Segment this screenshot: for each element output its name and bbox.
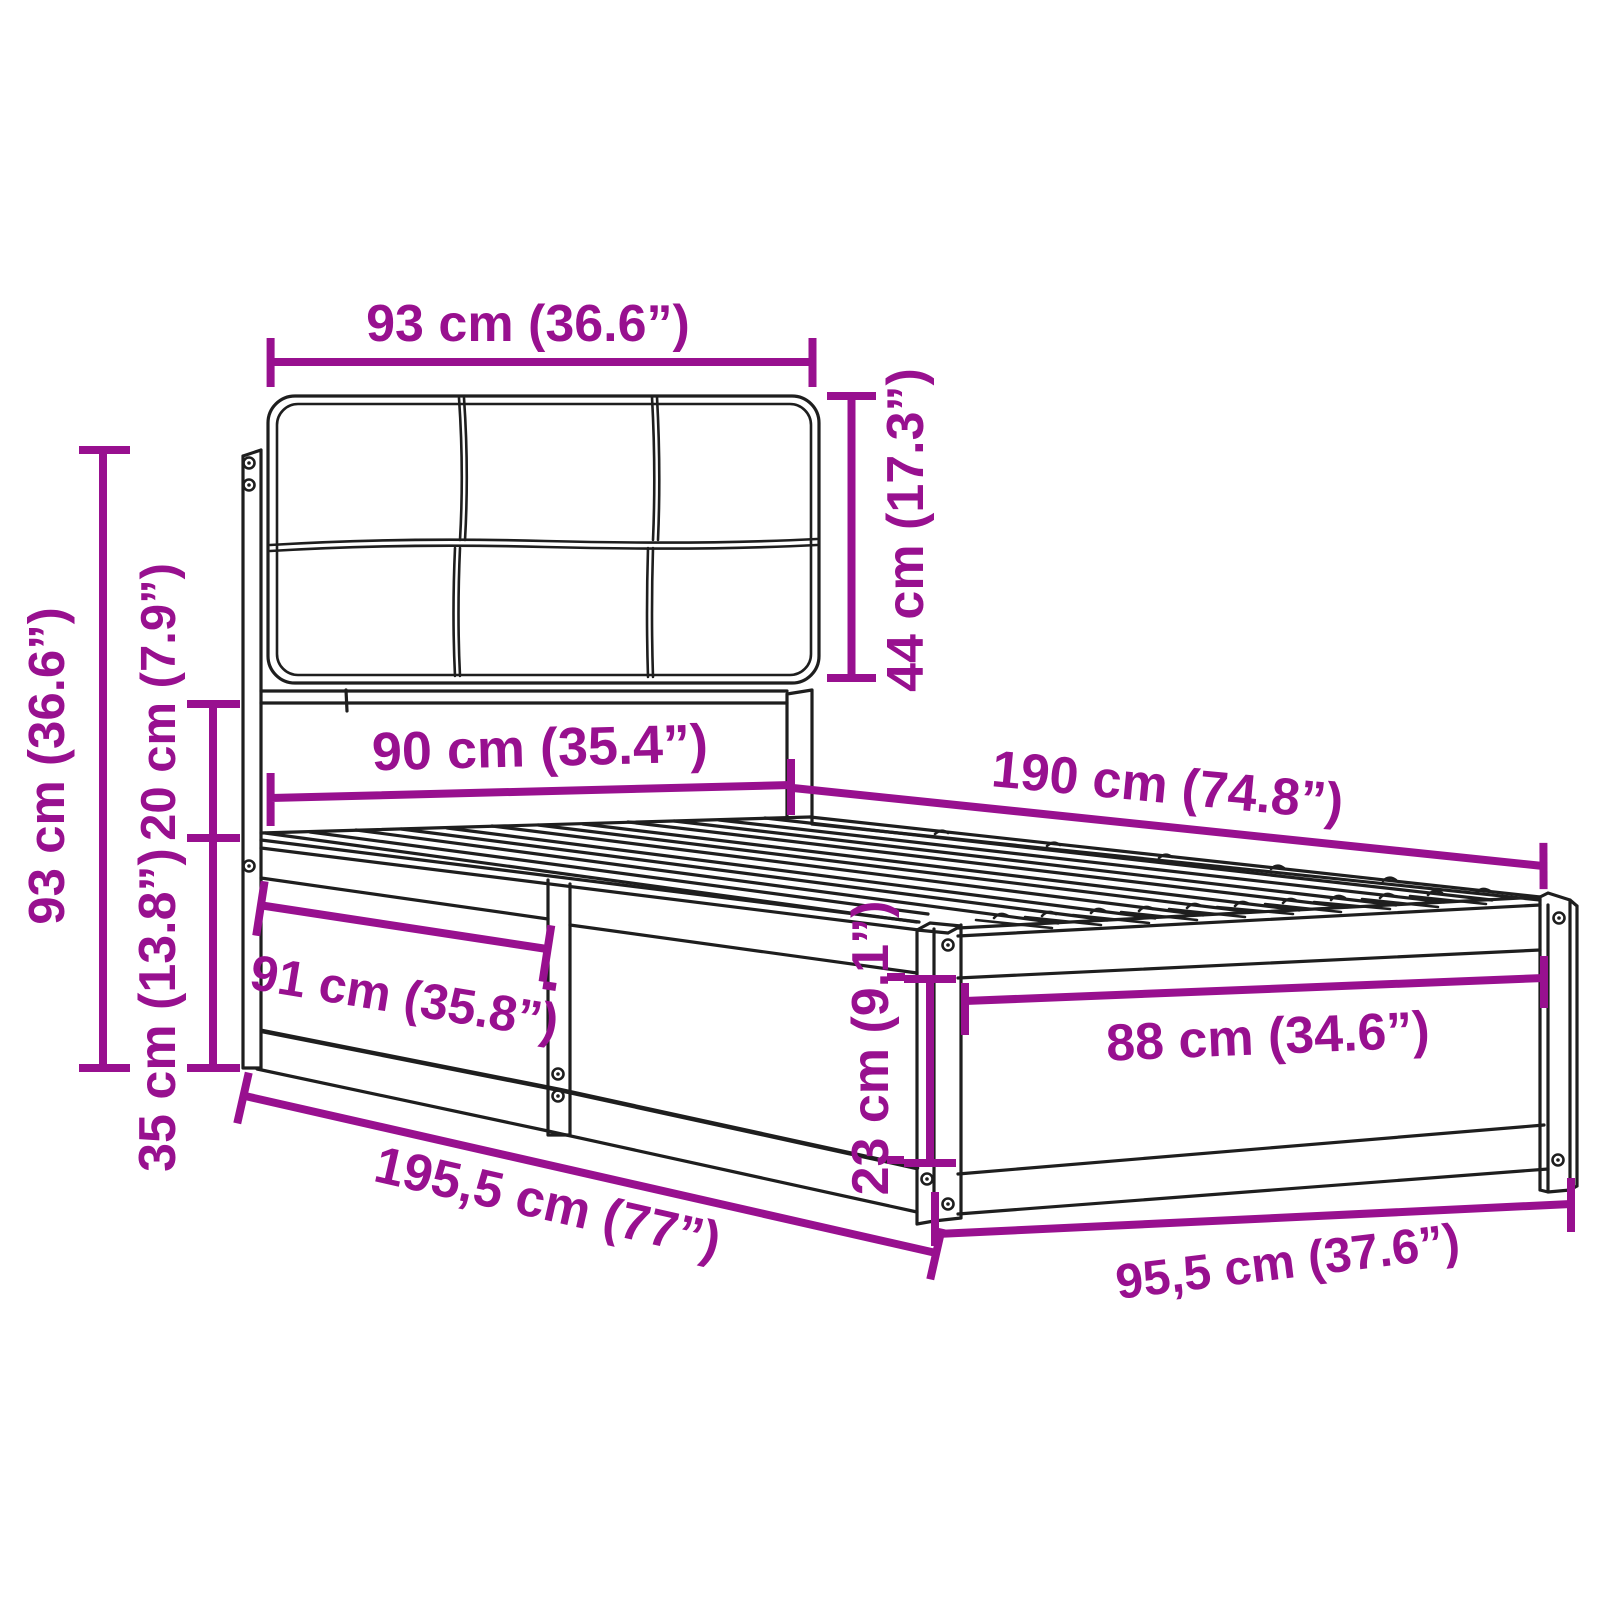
svg-text:35 cm (13.8”): 35 cm (13.8”): [129, 848, 187, 1172]
svg-text:20 cm (7.9”): 20 cm (7.9”): [132, 563, 186, 841]
svg-text:23 cm (9.1”): 23 cm (9.1”): [842, 901, 900, 1196]
svg-text:90 cm (35.4”): 90 cm (35.4”): [371, 714, 709, 783]
svg-text:93 cm (36.6”): 93 cm (36.6”): [18, 607, 75, 925]
svg-text:44 cm (17.3”): 44 cm (17.3”): [877, 368, 935, 692]
svg-text:93 cm (36.6”): 93 cm (36.6”): [366, 295, 690, 353]
